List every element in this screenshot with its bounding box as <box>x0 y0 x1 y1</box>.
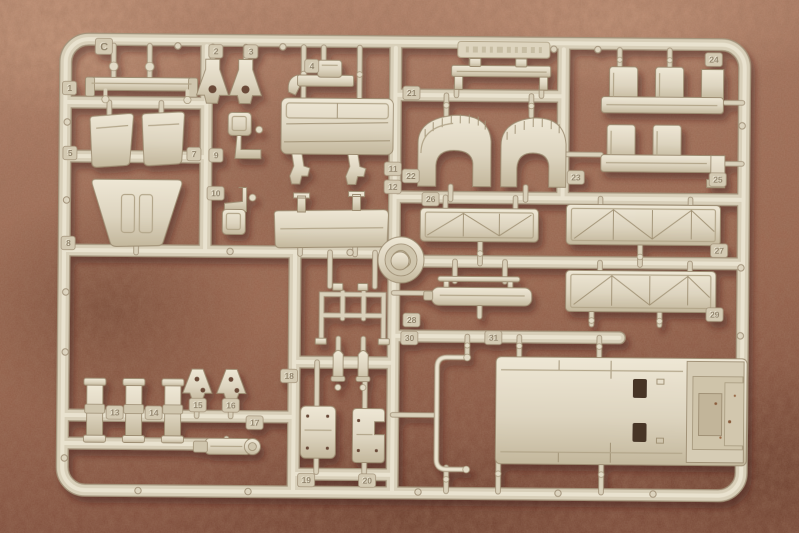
part-door-20 <box>352 408 384 462</box>
part-tag-31: 3131 <box>485 331 502 345</box>
svg-text:31: 31 <box>489 333 499 343</box>
svg-text:1: 1 <box>67 83 72 93</box>
part-tag-27: 2727 <box>711 244 728 258</box>
svg-text:19: 19 <box>302 475 312 485</box>
part-tag-30: 3030 <box>401 331 418 345</box>
part-tag-28: 2828 <box>403 313 420 327</box>
part-door-19 <box>300 406 335 458</box>
svg-text:4: 4 <box>309 61 314 71</box>
svg-text:29: 29 <box>710 310 720 320</box>
part-tag-17: 1717 <box>246 416 263 430</box>
part-tag-13: 1313 <box>106 406 123 420</box>
part-x-panel-26 <box>420 208 538 242</box>
part-tag-5: 55 <box>63 146 77 160</box>
svg-text:25: 25 <box>713 175 723 185</box>
part-tag-4: 44 <box>305 59 319 73</box>
part-tag-C: CC <box>95 38 112 54</box>
part-hull-tub <box>495 357 747 466</box>
part-tag-2: 22 <box>209 44 223 58</box>
sprue-photo: CC11223344557799101088111112122121222223… <box>0 0 799 533</box>
svg-text:20: 20 <box>363 476 373 486</box>
svg-text:10: 10 <box>211 188 221 198</box>
svg-text:8: 8 <box>66 238 71 248</box>
part-tag-8: 88 <box>61 236 75 250</box>
svg-text:18: 18 <box>284 371 294 381</box>
part-tag-20: 2020 <box>359 474 376 488</box>
svg-text:15: 15 <box>193 400 203 410</box>
svg-text:14: 14 <box>149 408 159 418</box>
svg-text:21: 21 <box>407 88 417 98</box>
part-tag-3: 33 <box>244 45 258 59</box>
part-tag-29: 2929 <box>706 308 723 322</box>
svg-text:23: 23 <box>571 173 581 183</box>
part-tag-22: 2222 <box>402 169 419 183</box>
part-stowage-tray <box>424 276 532 306</box>
svg-text:24: 24 <box>709 55 719 65</box>
part-tag-9: 99 <box>209 148 223 162</box>
svg-text:12: 12 <box>388 182 398 192</box>
part-tag-14: 1414 <box>145 406 162 420</box>
part-tag-24: 2424 <box>705 53 722 67</box>
part-tag-18: 1818 <box>280 369 297 383</box>
part-spare-wheel-cover <box>378 237 424 283</box>
photo-stage: Photograph of an injection-moulded model… <box>0 0 799 533</box>
svg-text:30: 30 <box>405 333 415 343</box>
part-tag-25: 2525 <box>709 173 726 187</box>
svg-text:16: 16 <box>226 401 236 411</box>
part-tag-15: 1515 <box>189 398 206 412</box>
part-tag-12: 1212 <box>384 180 401 194</box>
part-tag-11: 1111 <box>384 162 401 176</box>
svg-text:17: 17 <box>250 418 260 428</box>
svg-text:5: 5 <box>68 148 73 158</box>
svg-text:13: 13 <box>110 408 120 418</box>
part-channel-bracket-upper <box>601 67 723 114</box>
part-x-panel-29 <box>566 270 716 312</box>
svg-text:C: C <box>100 41 108 53</box>
part-tag-1: 11 <box>62 81 76 95</box>
svg-text:11: 11 <box>388 164 397 174</box>
part-tag-16: 1616 <box>222 399 239 413</box>
part-x-panel-27 <box>566 204 720 245</box>
svg-text:2: 2 <box>214 46 219 56</box>
part-axle-housings <box>83 378 184 443</box>
part-tag-19: 1919 <box>298 473 315 487</box>
part-tag-26: 2626 <box>422 192 439 206</box>
svg-text:9: 9 <box>214 150 219 160</box>
svg-text:22: 22 <box>406 171 416 181</box>
part-tag-10: 1010 <box>207 186 224 200</box>
molded-brand-plaque <box>458 41 550 58</box>
part-tag-23: 2323 <box>567 171 584 185</box>
part-tag-7: 77 <box>187 147 201 161</box>
svg-text:28: 28 <box>407 315 417 325</box>
svg-text:26: 26 <box>426 194 436 204</box>
svg-text:27: 27 <box>715 246 725 256</box>
svg-text:7: 7 <box>192 149 197 159</box>
part-tag-21: 2121 <box>403 86 420 100</box>
svg-text:3: 3 <box>249 47 254 57</box>
